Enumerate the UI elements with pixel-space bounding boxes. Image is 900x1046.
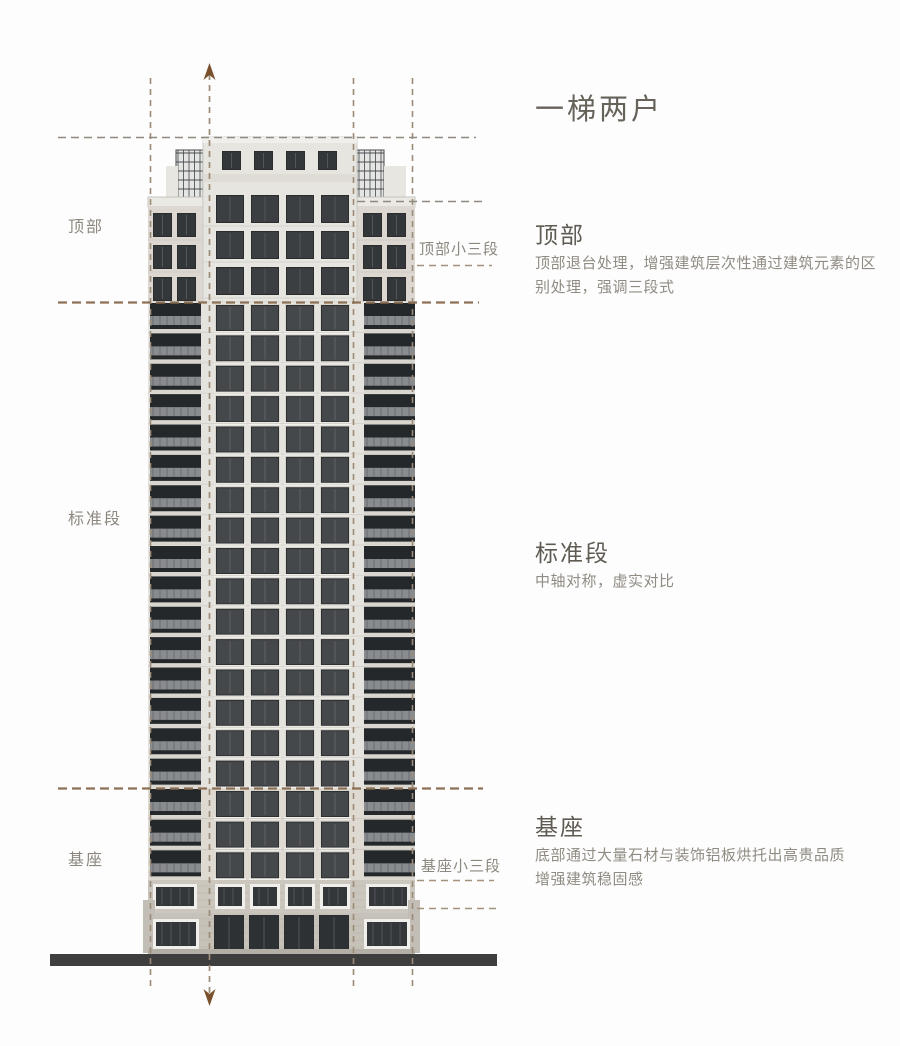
building-elevation — [143, 137, 420, 954]
section-heading-base: 基座 — [535, 808, 585, 842]
callout-top-small-three-section: 顶部小三段 — [419, 238, 499, 259]
section-body-top: 顶部退台处理，增强建筑层次性通过建筑元素的区 别处理，强调三段式 — [535, 252, 880, 301]
section-heading-standard: 标准段 — [535, 534, 610, 568]
page: 一梯两户 顶部 顶部退台处理，增强建筑层次性通过建筑元素的区 别处理，强调三段式… — [0, 0, 900, 1046]
page-title: 一梯两户 — [535, 86, 663, 128]
left-label-top: 顶部 — [68, 213, 104, 237]
callout-base-small-three-section: 基座小三段 — [421, 855, 501, 876]
left-label-base: 基座 — [68, 846, 104, 870]
left-label-standard: 标准段 — [68, 505, 122, 529]
section-body-base: 底部通过大量石材与装饰铝板烘托出高贵品质 增强建筑稳固感 — [535, 844, 880, 893]
section-body-standard: 中轴对称，虚实对比 — [535, 570, 880, 594]
section-heading-top: 顶部 — [535, 216, 585, 250]
ground-line — [50, 954, 497, 966]
